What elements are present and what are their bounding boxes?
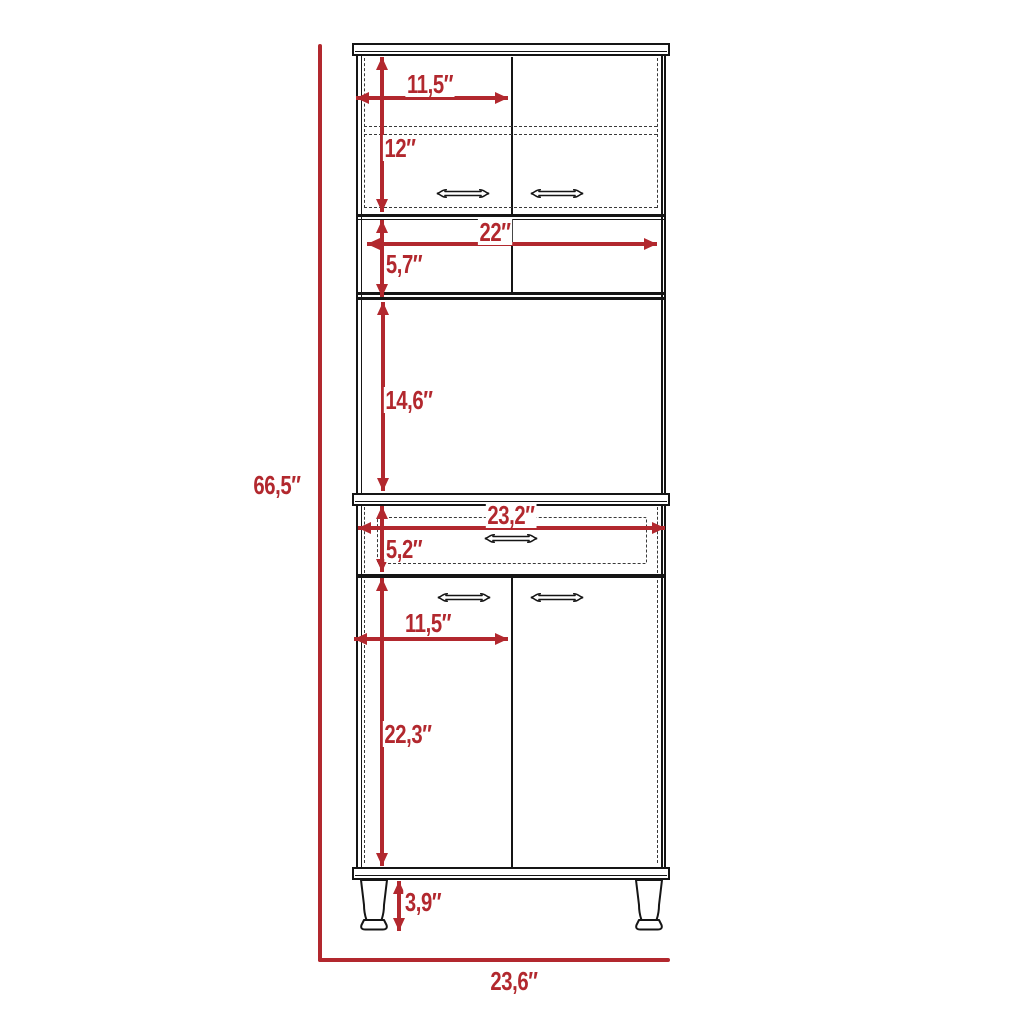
left-leg [357,879,391,933]
upper-shelf-hidden-edge-1 [364,126,657,127]
drawer-right-hidden-edge [657,507,658,573]
upper-left-door-handle-icon [434,187,492,200]
drawer-handle-icon [482,532,540,545]
lower-door-height-label: 22,3″ [383,721,433,747]
right-leg [632,879,666,933]
cabinet-dimension-diagram: 66,5″ 23,6″ 11,5″ 12″ 22″ 5,7″ 14,6″ 23,… [0,0,1024,1024]
lower-doors-divider [511,578,514,868]
top-board [352,43,670,56]
overall-height-dimension-line [318,44,322,962]
open-compartment-height-label: 14,6″ [384,387,434,413]
upper-right-door-handle-icon [528,187,586,200]
upper-section-height-label: 12″ [383,135,417,161]
upper-door-width-label: 11,5″ [405,71,454,97]
upper-bottom-hidden-edge [364,207,657,208]
lower-right-door-handle-icon [528,591,586,604]
lower-left-door-handle-icon [435,591,493,604]
upper-left-hidden-edge [364,58,365,208]
drawer-width-label: 23,2″ [486,502,536,528]
upper-doors-divider [511,57,514,215]
upper-right-hidden-edge [657,58,658,208]
shelf-board-bottom-line [356,297,666,300]
right-inner-panel-line [661,55,663,867]
lower-right-hidden-edge [657,580,658,863]
lower-left-hidden-edge [364,580,365,863]
overall-width-dimension-line [318,958,670,962]
leg-height-arrow [397,881,402,931]
overall-height-label: 66,5″ [252,472,302,498]
drawer-left-hidden-edge [364,507,365,573]
open-shelf-height-label: 5,7″ [384,251,423,277]
left-inner-panel-line [361,55,363,867]
bottom-board [352,867,670,880]
lower-door-width-label: 11,5″ [403,610,452,636]
leg-height-label: 3,9″ [403,889,442,915]
open-shelf-width-label: 22″ [478,219,512,245]
drawer-height-label: 5,2″ [384,536,423,562]
overall-width-label: 23,6″ [489,968,539,994]
